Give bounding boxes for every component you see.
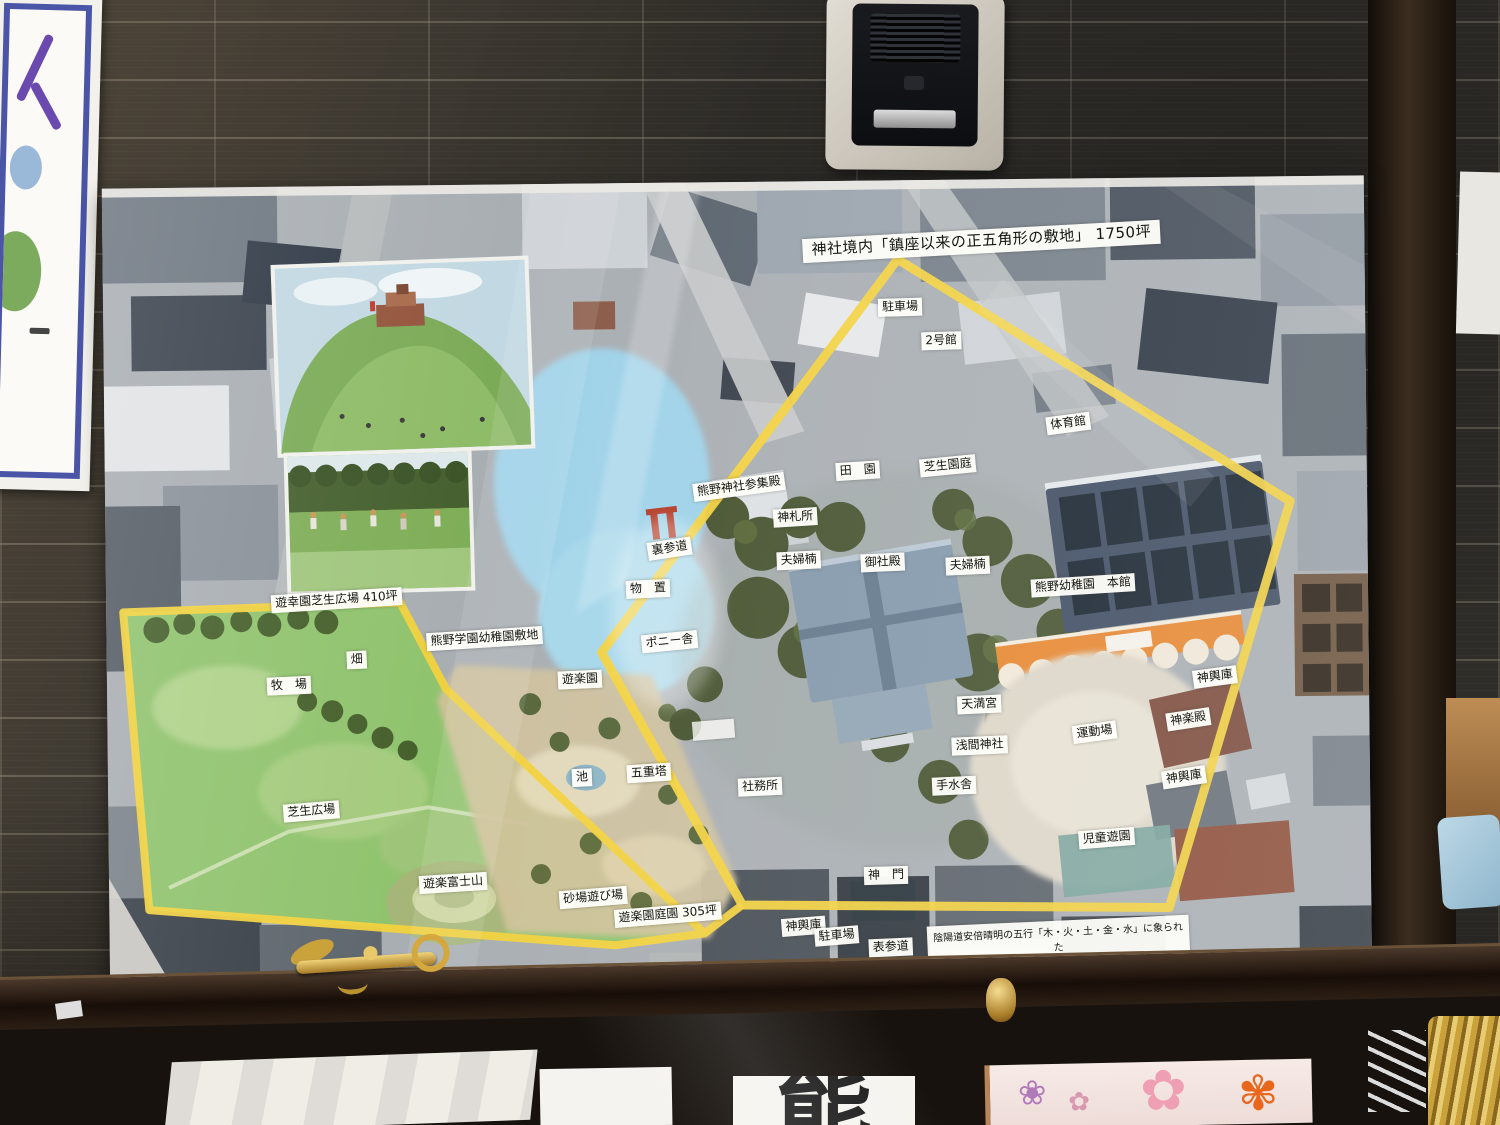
paint-blob [30,328,50,335]
map-label: 神 門 [864,866,909,885]
map-label: 田 園 [835,460,880,481]
map-label: 裏参道 [646,537,692,561]
map-label: 畑 [346,651,367,670]
map-label: 児童遊園 [1078,827,1135,849]
map-label-illegible [692,719,735,741]
map-label: 神札所 [773,507,818,528]
map-label: 物 置 [626,579,671,599]
intercom-panel [851,3,978,146]
wood-shelf [1446,698,1500,830]
map-label: 体育館 [1045,412,1091,436]
map-label: 夫婦楠 [776,550,821,570]
poster-title: 神社境内「鎮座以来の正五角形の敷地」 1750坪 [802,220,1161,263]
map-label: 駐車場 [814,925,859,946]
map-label: 遊楽園 [558,670,603,690]
map-label: 芝生園庭 [919,454,977,477]
ornament-scroll [410,933,451,974]
intercom-unit [825,0,1005,171]
map-label: 神輿庫 [1161,765,1207,789]
map-label: 遊楽富士山 [419,872,488,894]
paint-blob [9,145,42,190]
side-paper [1456,171,1500,334]
map-label: 五重塔 [626,763,671,784]
map-label: 天満宮 [957,694,1002,714]
map-label: 神楽殿 [1165,707,1211,731]
map-labels: 神社境内「鎮座以来の正五角形の敷地」 1750坪 駐車場 2号館 体育館 芝生園… [102,175,1372,1002]
gold-corner-ornament [293,915,450,1007]
map-label: 夫婦楠 [945,556,990,576]
map-label: 熊野幼稚園 本館 [1031,573,1136,597]
map-label: 砂場遊び場 [559,886,628,909]
poster-mat [0,3,92,479]
map-label: 牧 場 [267,676,312,696]
map-label: 手水舎 [932,776,977,796]
camera-window [904,76,924,90]
paint-blob [0,231,42,312]
speaker-grill-icon [870,14,960,63]
map-label: 池 [572,768,593,787]
map-label: 熊野神社参集殿 [692,472,786,502]
map-label: 遊楽園庭園 305坪 [614,901,722,928]
map-label: 運動場 [1072,720,1118,744]
case-knob [986,978,1016,1022]
map-label: 浅間神社 [951,735,1008,756]
map-label: 表参道 [868,937,913,957]
calligraphy-stroke [30,81,63,131]
map-label: 神輿庫 [1192,665,1238,689]
map-label: 御社殿 [860,552,905,572]
map-label: 駐車場 [878,298,923,317]
map-label: 社務所 [738,777,783,797]
map-label: 2号館 [921,331,961,350]
blue-tray [1437,814,1500,910]
map-label: 遊幸園芝生広場 410坪 [271,587,403,613]
map-label: ポニー舎 [641,630,699,653]
map-label: 熊野学園幼稚園敷地 [426,626,543,651]
ornament-curve [337,972,368,995]
left-wall-poster [0,0,103,491]
photo-scene: 神社境内「鎮座以来の正五角形の敷地」 1750坪 駐車場 2号館 体育館 芝生園… [0,0,1500,1125]
intercom-badge [874,110,956,129]
shrine-map-poster: 神社境内「鎮座以来の正五角形の敷地」 1750坪 駐車場 2号館 体育館 芝生園… [102,175,1372,1002]
map-label: 芝生広場 [283,800,340,822]
